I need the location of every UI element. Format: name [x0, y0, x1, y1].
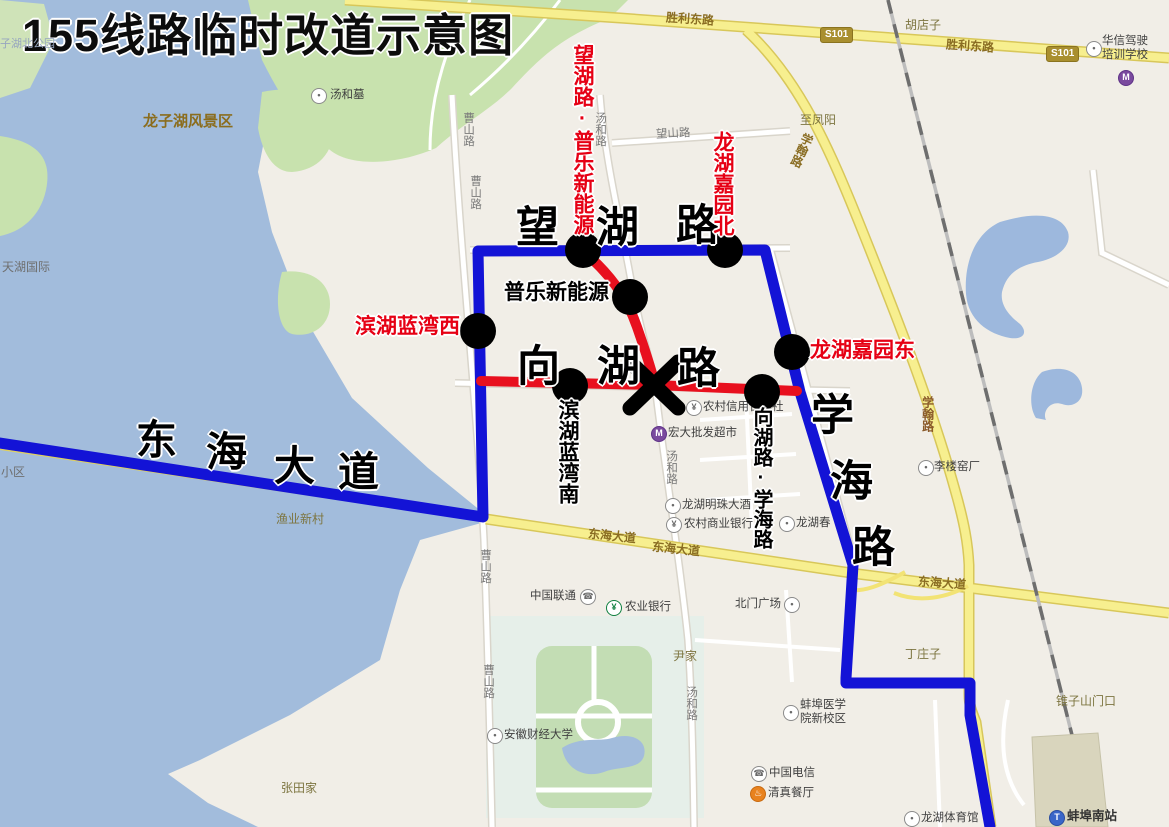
building-icon-longhuchun: • [779, 516, 795, 532]
factory-icon: • [918, 460, 934, 476]
poi-label-beimen: 北门广场 [735, 598, 781, 610]
place-label-xiaoqu: 小区 [1, 466, 25, 479]
train-station-icon: T [1049, 810, 1065, 826]
place-label-zhi-fengyang: 至凤阳 [800, 114, 836, 127]
stop-label-wanghu-pule: 望湖路·普乐新能源 [571, 44, 593, 235]
road-label-wanghu-2: 湖 [596, 206, 639, 251]
stop-label-xianghu-xuehai: 向湖路·学海路 [750, 407, 771, 549]
road-label-wanghu-1: 望 [516, 206, 559, 251]
stop-dot-pule-xinnengyuan [612, 279, 648, 315]
credit-union-icon: ¥ [686, 400, 702, 416]
road-label-xuehai-1: 学 [811, 394, 854, 439]
road-label-donghai-3: 大 [274, 445, 315, 488]
road-label-xuehai-3: 路 [852, 526, 895, 571]
place-label-hudianzi: 胡店子 [905, 19, 941, 32]
stop-dot-longhu-jiayuan-dong [774, 334, 810, 370]
place-label-tianhu: 天湖国际 [2, 261, 50, 274]
bank-icon-agricultural: ¥ [606, 600, 622, 616]
university-icon-yixue: • [783, 705, 799, 721]
road-label-caoshan-1: 曹山路 [462, 112, 474, 147]
place-label-zhangtianjia: 张田家 [281, 782, 317, 795]
restaurant-icon: ♨ [750, 786, 766, 802]
road-label-caoshan-3: 曹山路 [479, 549, 491, 584]
road-label-caoshan-4: 曹山路 [482, 664, 494, 699]
place-label-dingzhuangzi: 丁庄子 [905, 648, 941, 661]
poi-label-caijing: 安徽财经大学 [504, 729, 573, 741]
poi-label-lilou: 李楼窑厂 [934, 461, 980, 473]
stop-label-binhu-lanwan-nan: 滨湖蓝湾南 [556, 399, 578, 504]
road-label-caoshan-2: 曹山路 [469, 175, 481, 210]
road-label-wangshan: 望山路 [656, 127, 691, 141]
stop-label-longhu-jiayuan-bei: 龙湖嘉园北 [711, 131, 733, 236]
poi-label-liantong: 中国联通 [530, 590, 576, 602]
plaza-icon: • [784, 597, 800, 613]
stadium-icon: • [904, 811, 920, 827]
road-label-xuehan-2: 学翰路 [921, 396, 934, 432]
road-label-xianghu-1: 向 [517, 345, 560, 390]
poi-label-nongye-bank: 农业银行 [625, 601, 671, 613]
road-label-xianghu-2: 湖 [597, 345, 640, 390]
place-label-longzihu: 龙子湖风景区 [143, 114, 233, 130]
poi-label-huaxin-2: 培训学校 [1102, 49, 1148, 61]
map-title: 155线路临时改道示意图 [22, 12, 514, 59]
university-icon-caijing: • [487, 728, 503, 744]
poi-label-yixue-2: 院新校区 [800, 713, 846, 725]
road-label-tanghe-3: 汤和路 [685, 686, 697, 721]
place-label-zihubei-park: 子湖北公园 [0, 39, 55, 51]
road-label-xuehai-2: 海 [830, 460, 873, 505]
poi-icon-clipped: M [1118, 70, 1134, 86]
road-label-shengli-1: 胜利东路 [666, 11, 715, 27]
poi-label-dianxin: 中国电信 [769, 767, 815, 779]
road-label-xianghu-3: 路 [677, 347, 720, 392]
stop-dot-xianghu-xuehai [744, 374, 780, 410]
stop-label-longhu-jiayuan-dong: 龙湖嘉园东 [810, 340, 915, 362]
driving-school-icon: • [1086, 41, 1102, 57]
telecom-icon-unicom: ☎ [580, 589, 596, 605]
poi-label-huaxin-1: 华信驾驶 [1102, 35, 1148, 47]
road-label-tanghe-1: 汤和路 [594, 112, 606, 147]
poi-label-hongda: 宏大批发超市 [668, 427, 737, 439]
place-label-zhuizishan: 锥子山门口 [1056, 695, 1116, 708]
route-badge-s101-1: S101 [820, 27, 853, 43]
poi-label-tiyuguan: 龙湖体育馆 [921, 812, 979, 824]
road-label-donghai-s3: 东海大道 [918, 575, 967, 591]
road-label-donghai-4: 道 [338, 451, 379, 494]
poi-label-qingzhen: 清真餐厅 [768, 787, 814, 799]
hotel-icon: • [665, 498, 681, 514]
telecom-icon-dianxin: ☎ [751, 766, 767, 782]
place-label-yinjia: 尹家 [673, 650, 697, 663]
route-badge-s101-2: S101 [1046, 46, 1079, 62]
stop-dot-binhu-lanwan-xi [460, 313, 496, 349]
road-label-donghai-2: 海 [206, 431, 247, 474]
road-label-shengli-2: 胜利东路 [946, 38, 995, 54]
tomb-icon: • [311, 88, 327, 104]
stop-label-pule-xinnengyuan: 普乐新能源 [504, 282, 609, 304]
map-screenshot: 155线路临时改道示意图 望 湖 路 向 湖 路 学 海 路 东 海 大 道 望… [0, 0, 1169, 827]
stop-label-binhu-lanwan-xi: 滨湖蓝湾西 [355, 316, 460, 338]
wholesale-market-icon: M [651, 426, 667, 442]
poi-label-nanzhan: 蚌埠南站 [1067, 810, 1117, 823]
place-label-yujia-xincun: 渔业新村 [276, 513, 324, 526]
poi-label-nongshang: 农村商业银行 [684, 518, 753, 530]
poi-label-mingzhu: 龙湖明珠大酒 [682, 499, 751, 511]
poi-label-yixue-1: 蚌埠医学 [800, 699, 846, 711]
road-label-tanghe-2: 汤和路 [665, 450, 677, 485]
poi-label-tanghemu: 汤和墓 [330, 89, 365, 101]
poi-label-longhu-chun: 龙湖春 [796, 517, 831, 529]
road-label-donghai-1: 东 [136, 419, 177, 462]
bank-icon-rural: ¥ [666, 517, 682, 533]
